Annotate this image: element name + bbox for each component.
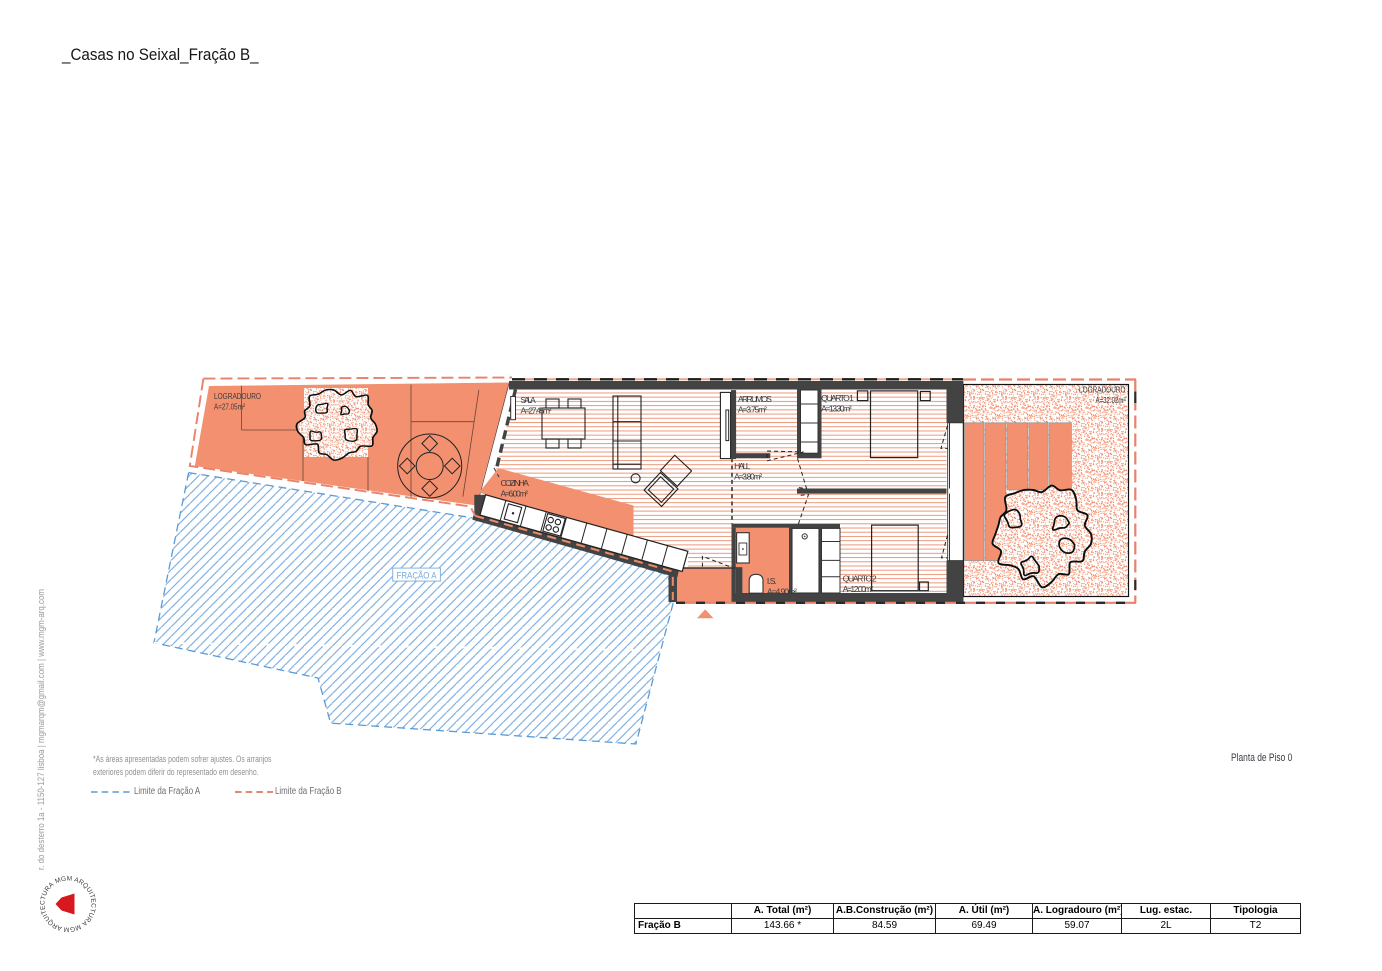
svg-text:A=13.30m²: A=13.30m² bbox=[821, 404, 852, 414]
svg-text:A=3.80m²: A=3.80m² bbox=[734, 472, 762, 482]
svg-text:ARRUMOS: ARRUMOS bbox=[738, 394, 772, 404]
svg-text:A=4.90m²: A=4.90m² bbox=[767, 587, 797, 597]
svg-text:r. do desterro 1a - 1150-127 l: r. do desterro 1a - 1150-127 lisboa | mg… bbox=[36, 589, 47, 870]
svg-text:HALL: HALL bbox=[734, 461, 751, 471]
svg-text:LOGRADOURO: LOGRADOURO bbox=[214, 391, 261, 401]
svg-text:A=27.45m²: A=27.45m² bbox=[521, 406, 552, 416]
svg-text:QUARTO 1: QUARTO 1 bbox=[821, 393, 854, 403]
svg-text:A=32.02m²: A=32.02m² bbox=[1096, 395, 1126, 405]
svg-text:A=3.75m²: A=3.75m² bbox=[738, 405, 767, 415]
svg-text:LOGRADOURO: LOGRADOURO bbox=[1079, 385, 1126, 395]
svg-text:I.S.: I.S. bbox=[767, 576, 777, 586]
svg-text:FRAÇÃO A: FRAÇÃO A bbox=[397, 570, 438, 580]
svg-text:A=27.05m²: A=27.05m² bbox=[214, 402, 245, 412]
svg-text:QUARTO 2: QUARTO 2 bbox=[843, 574, 877, 584]
svg-text:SALA: SALA bbox=[521, 395, 536, 405]
svg-text:A=12.00m²: A=12.00m² bbox=[843, 584, 874, 594]
svg-text:A=6.00m²: A=6.00m² bbox=[501, 489, 529, 499]
svg-text:COZINHA: COZINHA bbox=[501, 478, 530, 488]
